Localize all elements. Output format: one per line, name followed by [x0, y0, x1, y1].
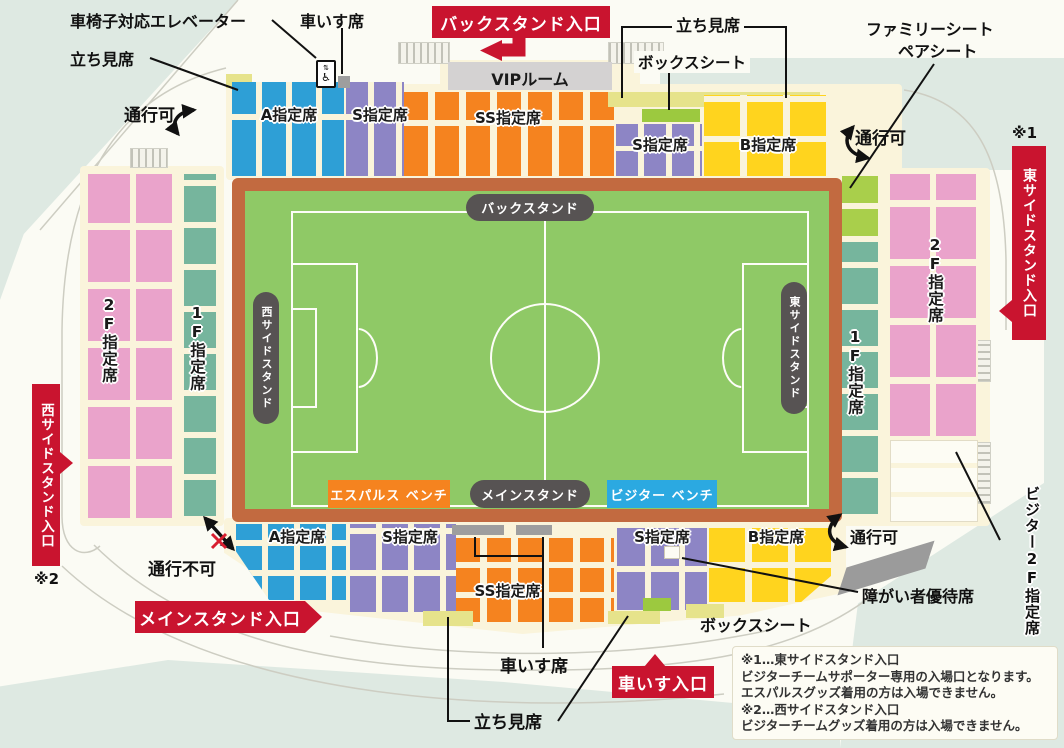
west-entrance-banner: 西サイドスタンド入口: [32, 384, 60, 566]
label-s-main: S指定席: [368, 526, 452, 547]
note-line-1: ※1…東サイドスタンド入口: [741, 652, 1049, 669]
east-entrance-text: 東サイドスタンド入口: [1019, 168, 1039, 318]
field-label-back-stand: バックスタンド: [466, 194, 594, 221]
label-b-back: B指定席: [722, 134, 814, 155]
wheelchair-entrance-banner: 車いす入口: [612, 666, 714, 698]
label-2f-east: 2F指定席: [924, 236, 946, 324]
field-label-east-stand: 東サイドスタンド: [781, 282, 807, 414]
visitor-bench-text: ビジター ベンチ: [610, 485, 713, 504]
family-seat-label-line1: ファミリーシート: [866, 16, 994, 40]
visitor-bench: ビジター ベンチ: [607, 480, 717, 508]
label-1f-east: 1F指定席: [844, 328, 866, 416]
family-seat-label-line2: ペアシート: [898, 38, 977, 62]
standing-block-bottom-1: [423, 611, 473, 626]
east-entrance-banner: 東サイドスタンド入口: [1012, 146, 1046, 340]
wheelchair-seat-bottom-label: 車いす席: [500, 652, 568, 677]
west-entrance-text: 西サイドスタンド入口: [36, 403, 56, 548]
field-label-west-stand: 西サイドスタンド: [253, 292, 279, 424]
label-s2-main: S指定席: [620, 526, 704, 547]
standing-top-right-label: 立ち見席: [672, 12, 744, 36]
field-label-east-stand-text: 東サイドスタンド: [786, 296, 802, 400]
label-s2-back: S指定席: [618, 134, 702, 155]
back-entrance-arrow: [480, 37, 519, 61]
wheelchair-strip-1: [452, 525, 504, 535]
center-circle: [490, 303, 600, 413]
ref2-mark: ※2: [34, 570, 59, 588]
notes-box: ※1…東サイドスタンド入口 ビジターチームサポーター専用の入場口となります。 エ…: [732, 646, 1058, 740]
main-entrance-banner: メインスタンド入口: [135, 601, 305, 633]
box-seat-bar-bottom: [643, 598, 671, 611]
visitor-2f-label: ビジター2F指定席: [1022, 486, 1043, 646]
visitor-2f-seat-area: [890, 440, 978, 522]
note-line-3: エスパルスグッズ着用の方は入場できません。: [741, 685, 1049, 702]
label-1f-west: 1F指定席: [186, 304, 208, 392]
seat-area-ss-back: [404, 92, 615, 176]
label-a-main: A指定席: [252, 526, 342, 547]
label-ss-back: SS指定席: [458, 107, 558, 128]
label-s-back: S指定席: [338, 104, 422, 125]
home-bench: エスパルス ベンチ: [328, 480, 450, 508]
seat-area-a-back: [232, 82, 344, 176]
passable-arrow-top-left: [175, 110, 194, 134]
passable-top-right-label: 通行可: [855, 124, 906, 149]
no-passage-label: 通行不可: [148, 555, 216, 580]
wheelchair-seat-block-top: [338, 76, 350, 88]
standing-block-bottom-2: [608, 611, 660, 624]
wheelchair-seat-top-label: 車いす席: [300, 8, 364, 32]
main-entrance-arrow: [305, 601, 322, 633]
back-entrance-banner: バックスタンド入口: [432, 6, 610, 38]
wheelchair-elevator-icon: ⇅ ♿: [316, 60, 336, 88]
home-bench-text: エスパルス ベンチ: [330, 485, 448, 504]
disabled-priority-seat-label: 障がい者優待席: [862, 583, 974, 607]
east-entrance-arrow: [999, 300, 1012, 322]
passable-top-left-label: 通行可: [124, 101, 175, 126]
seat-area-s-back: [346, 82, 404, 176]
field-label-main-stand-text: メインスタンド: [481, 485, 579, 504]
label-vip-room: VIPルーム: [448, 66, 612, 90]
terrain-bottom: [0, 660, 840, 748]
box-seat-bar-top: [642, 109, 700, 122]
main-entrance-text: メインスタンド入口: [139, 605, 301, 630]
field-label-west-stand-text: 西サイドスタンド: [258, 306, 274, 410]
passable-bottom-right-label: 通行可: [850, 524, 898, 548]
back-stairs-left: [398, 42, 450, 64]
box-seat-top-label: ボックスシート: [634, 51, 750, 73]
label-ss-main: SS指定席: [455, 580, 560, 601]
standing-bottom-label: 立ち見席: [474, 708, 542, 733]
label-b-main: B指定席: [730, 526, 822, 547]
goal-area-left: [291, 308, 317, 408]
wheelchair-entrance-text: 車いす入口: [618, 670, 708, 695]
field-label-main-stand: メインスタンド: [470, 480, 590, 508]
label-2f-west: 2F指定席: [98, 296, 120, 384]
pitch: [232, 178, 842, 522]
standing-top-left-label: 立ち見席: [70, 46, 134, 70]
ref1-mark: ※1: [1012, 124, 1037, 142]
disabled-seat-notch: [664, 546, 680, 559]
west-entrance-arrow: [60, 452, 73, 474]
wheelchair-icon: ♿: [321, 72, 331, 83]
note-line-4: ※2…西サイドスタンド入口: [741, 702, 1049, 719]
no-passage-cross: [212, 534, 226, 548]
family-pair-seat-area: [842, 176, 878, 236]
stadium-seating-map: ⇅ ♿ A指定席 S指定席 SS指定席 VIPルーム S指定席 B指定席 バック…: [0, 0, 1064, 748]
field-label-back-stand-text: バックスタンド: [481, 198, 579, 217]
wheelchair-elevator-label: 車椅子対応エレベーター: [70, 8, 246, 32]
wheelchair-strip-2: [516, 525, 552, 535]
note-line-5: ビジターチームグッズ着用の方は入場できません。: [741, 718, 1049, 735]
back-entrance-text: バックスタンド入口: [440, 10, 602, 35]
west-stand-stairs: [130, 148, 168, 168]
label-a-back: A指定席: [244, 104, 334, 125]
box-seat-bottom-label: ボックスシート: [700, 612, 812, 636]
wheelchair-entrance-arrow: [644, 654, 666, 667]
note-line-2: ビジターチームサポーター専用の入場口となります。: [741, 669, 1049, 686]
